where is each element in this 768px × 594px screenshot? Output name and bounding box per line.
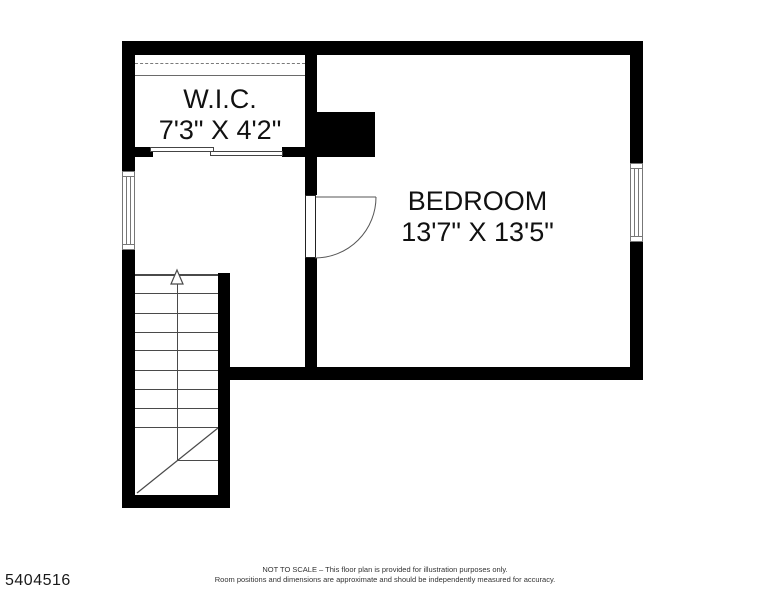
wall-top (122, 41, 643, 55)
disclaimer-text: NOT TO SCALE – This floor plan is provid… (110, 565, 660, 584)
stair-winder-line (177, 460, 218, 461)
wall-left-upper (122, 41, 135, 171)
stair-direction-line (177, 284, 178, 460)
wall-left-lower (122, 250, 135, 508)
plan-line-overlay (0, 0, 768, 594)
floor-plan-page: W.I.C. 7'3" X 4'2" BEDROOM 13'7" X 13'5"… (0, 0, 768, 594)
window-left-icon (122, 171, 135, 250)
mls-number: 5404516 (5, 572, 71, 590)
closet-rod-dashed-line (135, 63, 305, 64)
window-pane (634, 169, 639, 236)
closet-shelf-line (135, 75, 305, 76)
wall-right-lower (630, 242, 643, 380)
wall-stair-right (218, 273, 230, 508)
window-pane (126, 177, 131, 244)
window-right-icon (630, 163, 643, 242)
disclaimer-line-1: NOT TO SCALE – This floor plan is provid… (110, 565, 660, 575)
window-sill (631, 236, 642, 237)
chimney-block (317, 112, 375, 157)
wall-divider-lower (305, 258, 317, 367)
disclaimer-line-2: Room positions and dimensions are approx… (110, 575, 660, 585)
bedroom-room-dimensions: 13'7" X 13'5" (340, 217, 615, 247)
wall-divider-upper (305, 55, 317, 195)
wic-room-dimensions: 7'3" X 4'2" (135, 115, 305, 145)
window-sill (123, 244, 134, 245)
stair-top-edge (135, 274, 218, 276)
wic-wall-right-segment (282, 147, 305, 157)
sliding-door-panel-icon (210, 151, 283, 156)
stairs-up-arrow-icon (171, 270, 183, 284)
wall-stair-bottom (122, 495, 230, 508)
bedroom-room-label: BEDROOM (340, 186, 615, 216)
wall-bedroom-bottom (218, 367, 643, 380)
bedroom-door-leaf (305, 195, 316, 258)
wall-right-upper (630, 41, 643, 163)
wic-room-label: W.I.C. (135, 84, 305, 114)
sliding-door-panel-icon (150, 147, 214, 152)
